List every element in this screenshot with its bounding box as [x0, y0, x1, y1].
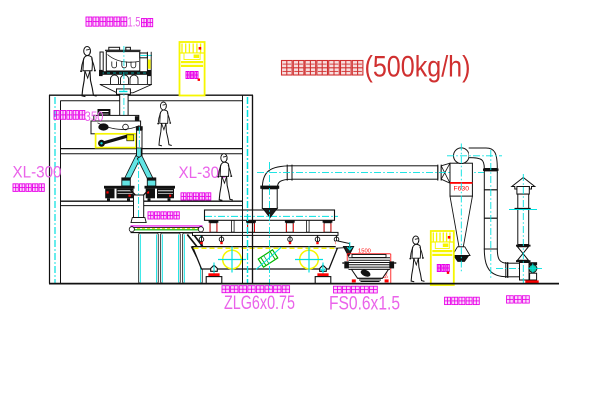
svg-text:(500kg/h): (500kg/h)	[365, 51, 471, 84]
svg-text:ZLG6x0.75: ZLG6x0.75	[224, 293, 295, 314]
svg-text:350: 350	[85, 108, 104, 124]
svg-text:1500: 1500	[358, 249, 371, 255]
svg-text:FS0.6x1.5: FS0.6x1.5	[329, 294, 400, 315]
svg-text:1.5: 1.5	[128, 15, 141, 30]
svg-text:XL-300: XL-300	[13, 164, 62, 182]
